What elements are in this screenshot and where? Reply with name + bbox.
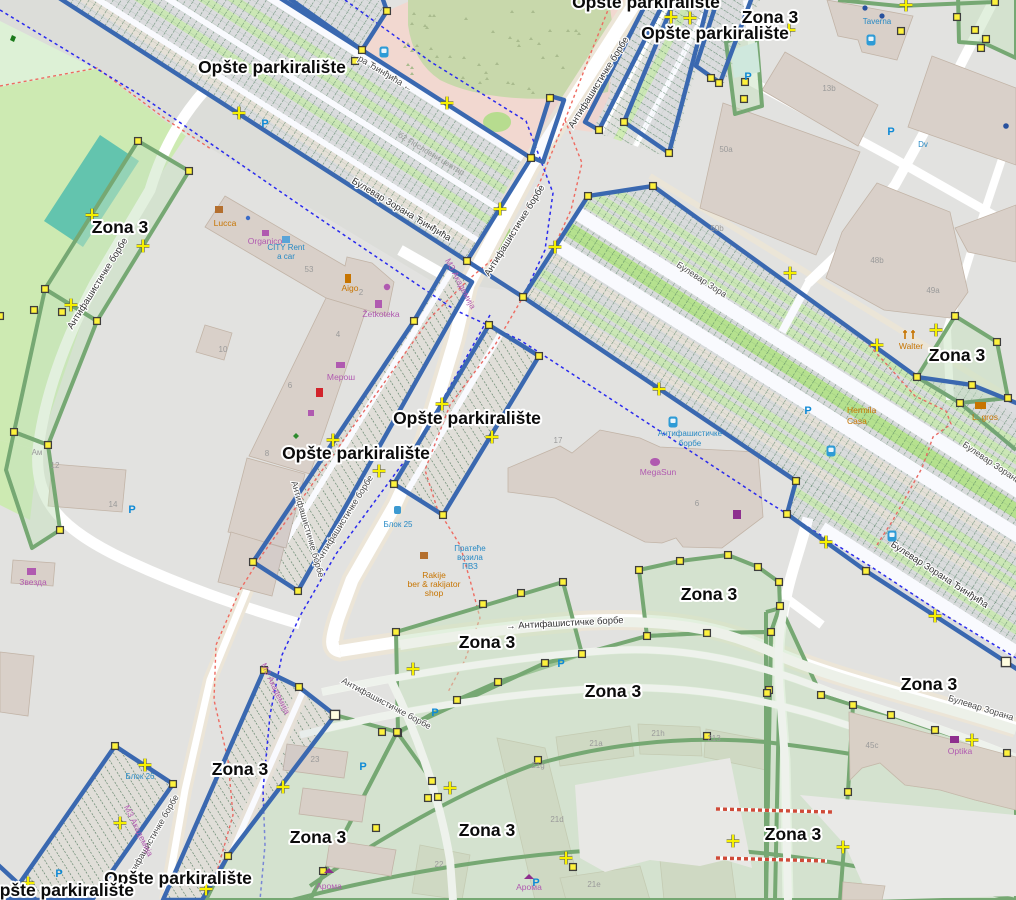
- svg-text:Мерош: Мерош: [327, 372, 355, 382]
- svg-text:P: P: [557, 658, 564, 670]
- svg-text:P: P: [431, 707, 438, 719]
- svg-text:21d: 21d: [550, 815, 563, 824]
- svg-text:Opšte parkiralište: Opšte parkiralište: [572, 0, 720, 12]
- svg-text:Hermila: Hermila: [847, 405, 877, 415]
- svg-text:CITY Rent: CITY Rent: [267, 243, 305, 252]
- svg-text:22: 22: [435, 860, 444, 869]
- svg-text:a car: a car: [277, 252, 295, 261]
- svg-text:23: 23: [311, 755, 320, 764]
- svg-text:Zona 3: Zona 3: [459, 820, 516, 840]
- svg-text:ПВЗ: ПВЗ: [462, 562, 478, 571]
- svg-text:213: 213: [707, 734, 721, 743]
- svg-text:Opšte parkiralište: Opšte parkiralište: [282, 443, 430, 463]
- svg-text:Zona 3: Zona 3: [585, 681, 642, 701]
- svg-text:Casa: Casa: [847, 416, 867, 426]
- svg-text:Zona 3: Zona 3: [929, 345, 986, 365]
- svg-text:Zona 3: Zona 3: [92, 217, 149, 237]
- svg-text:возила: возила: [457, 553, 483, 562]
- svg-text:Zona 3: Zona 3: [290, 827, 347, 847]
- svg-text:Арома: Арома: [316, 881, 342, 891]
- svg-text:21a: 21a: [589, 739, 603, 748]
- svg-text:Zona 3: Zona 3: [459, 632, 516, 652]
- svg-text:17: 17: [554, 436, 563, 445]
- svg-text:Lucca: Lucca: [214, 218, 237, 228]
- svg-text:Пратеће: Пратеће: [454, 544, 486, 553]
- svg-text:Zona 3: Zona 3: [212, 759, 269, 779]
- svg-text:P: P: [128, 504, 135, 516]
- svg-text:Антифашистичке: Антифашистичке: [658, 429, 723, 438]
- svg-text:4: 4: [336, 330, 341, 339]
- svg-text:48b: 48b: [870, 256, 884, 265]
- svg-text:Звезда: Звезда: [19, 577, 47, 587]
- svg-text:MegaSun: MegaSun: [640, 467, 677, 477]
- svg-text:Opšte parkiralište: Opšte parkiralište: [393, 408, 541, 428]
- svg-text:shop: shop: [425, 588, 444, 598]
- svg-text:Арома: Арома: [516, 882, 542, 892]
- svg-text:13b: 13b: [822, 84, 836, 93]
- svg-text:Optika: Optika: [948, 746, 973, 756]
- svg-text:Блок 25: Блок 25: [384, 520, 414, 529]
- svg-text:21g: 21g: [531, 761, 544, 770]
- svg-text:Walter: Walter: [899, 341, 923, 351]
- svg-text:Opšte parkiralište: Opšte parkiralište: [198, 57, 346, 77]
- svg-text:P: P: [744, 71, 751, 83]
- svg-text:50b: 50b: [710, 224, 724, 233]
- svg-text:Ам: Ам: [32, 448, 43, 457]
- svg-text:8: 8: [265, 449, 270, 458]
- svg-text:Zona 3: Zona 3: [901, 674, 958, 694]
- svg-text:P: P: [359, 761, 366, 773]
- svg-text:6: 6: [695, 499, 700, 508]
- svg-text:53: 53: [305, 265, 314, 274]
- svg-text:Блок 26: Блок 26: [126, 772, 156, 781]
- svg-text:10: 10: [219, 345, 228, 354]
- svg-text:P: P: [55, 868, 62, 880]
- svg-text:45c: 45c: [866, 741, 879, 750]
- svg-text:Zona 3: Zona 3: [765, 824, 822, 844]
- svg-text:P: P: [804, 405, 811, 417]
- svg-text:14: 14: [109, 500, 118, 509]
- svg-text:P: P: [261, 118, 268, 130]
- svg-text:21h: 21h: [651, 729, 664, 738]
- svg-text:6: 6: [288, 381, 293, 390]
- svg-text:борбе: борбе: [679, 439, 702, 448]
- svg-text:L..gros: L..gros: [972, 412, 998, 422]
- svg-text:Dv: Dv: [918, 140, 928, 149]
- svg-text:2: 2: [359, 288, 364, 297]
- svg-text:50a: 50a: [719, 145, 733, 154]
- svg-text:49a: 49a: [926, 286, 940, 295]
- svg-text:12: 12: [51, 461, 60, 470]
- svg-text:Žetkoteka: Žetkoteka: [362, 309, 400, 319]
- svg-text:Aigo: Aigo: [341, 283, 358, 293]
- svg-text:P: P: [887, 126, 894, 138]
- svg-text:Zona 3: Zona 3: [681, 584, 738, 604]
- svg-text:Taverna: Taverna: [863, 17, 892, 26]
- svg-text:Opšte parkiralište: Opšte parkiralište: [0, 880, 134, 900]
- svg-text:Zona 3: Zona 3: [742, 7, 799, 27]
- svg-text:21e: 21e: [587, 880, 601, 889]
